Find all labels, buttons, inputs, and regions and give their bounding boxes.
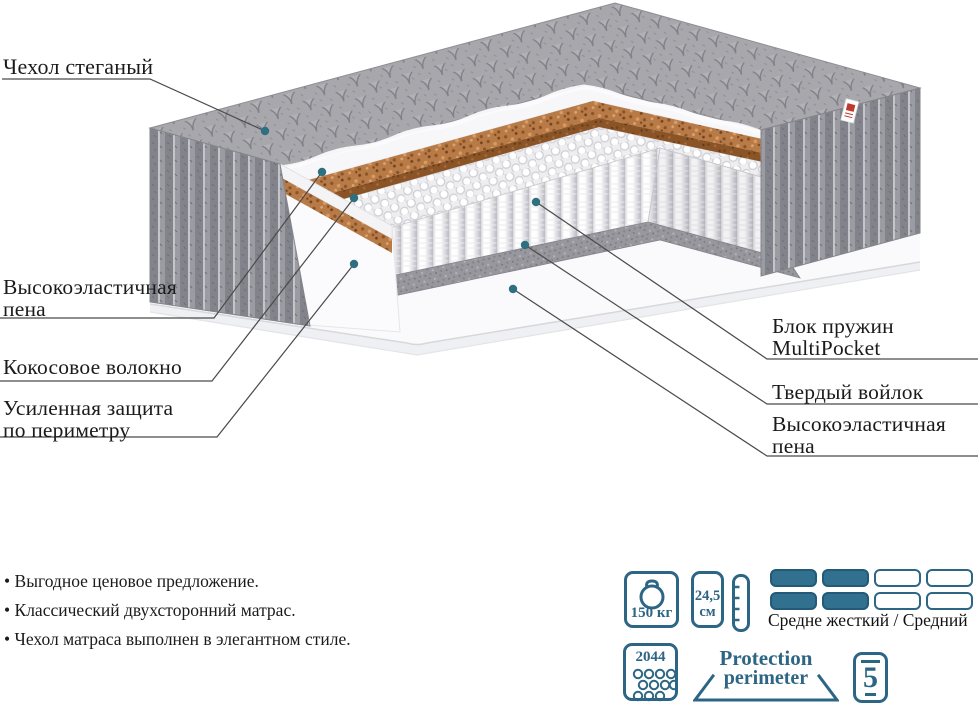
- feature-item: Классический двухсторонний матрас.: [4, 596, 351, 625]
- springs-count-badge: 2044: [623, 643, 678, 701]
- label-elastic-foam-left: Высокоэластичная пена: [3, 276, 177, 320]
- firmness-label: Средне жесткий / Средний: [768, 610, 968, 631]
- label-line: Высокоэластичная: [3, 276, 177, 298]
- mattress-infographic: Чехол стеганый Высокоэластичная пена Кок…: [0, 0, 978, 708]
- firmness-block-empty: [926, 592, 973, 610]
- label-quilted-cover: Чехол стеганый: [3, 56, 153, 78]
- mattress-illustration: [0, 0, 978, 548]
- feature-item: Чехол матраса выполнен в элегантном стил…: [4, 625, 351, 654]
- springs-grid-icon: [629, 668, 678, 702]
- height-value: 24,5: [694, 588, 721, 605]
- label-hard-felt: Твердый войлок: [772, 381, 923, 403]
- height-unit: см: [694, 604, 721, 621]
- firmness-block-filled: [822, 592, 869, 610]
- warranty-badge: 5: [853, 652, 888, 703]
- feature-item: Выгодное ценовое предложение.: [4, 567, 351, 596]
- firmness-block-filled: [822, 569, 869, 587]
- firmness-block-empty: [874, 569, 921, 587]
- label-elastic-foam-right: Высокоэластичная пена: [772, 413, 946, 457]
- perimeter-outline-icon: [693, 672, 839, 704]
- label-line: пена: [3, 298, 177, 320]
- label-coconut-fiber: Кокосовое волокно: [3, 356, 182, 378]
- label-line: Высокоэластичная: [772, 413, 946, 435]
- protection-perimeter-badge: Protection perimeter: [693, 648, 839, 688]
- label-line: MultiPocket: [772, 337, 894, 359]
- warranty-years: 5: [856, 661, 885, 695]
- firmness-block-filled: [770, 569, 817, 587]
- label-line: Блок пружин: [772, 315, 894, 337]
- label-line: пена: [772, 435, 946, 457]
- firmness-block-filled: [770, 592, 817, 610]
- label-line: по периметру: [3, 419, 173, 441]
- label-perimeter-protection: Усиленная защита по периметру: [3, 397, 173, 441]
- feature-list: Выгодное ценовое предложение. Классическ…: [4, 567, 351, 654]
- max-weight-value: 150 кг: [627, 605, 676, 622]
- ruler-icon: [732, 574, 750, 632]
- label-spring-block: Блок пружин MultiPocket: [772, 315, 894, 359]
- warranty-bottom-bar: [865, 693, 876, 696]
- firmness-block-empty: [926, 569, 973, 587]
- height-badge: 24,5 см: [691, 571, 724, 628]
- springs-count-value: 2044: [626, 649, 675, 666]
- max-weight-badge: 150 кг: [624, 571, 679, 628]
- label-line: Усиленная защита: [3, 397, 173, 419]
- firmness-block-empty: [874, 592, 921, 610]
- protection-word-1: Protection: [693, 648, 839, 669]
